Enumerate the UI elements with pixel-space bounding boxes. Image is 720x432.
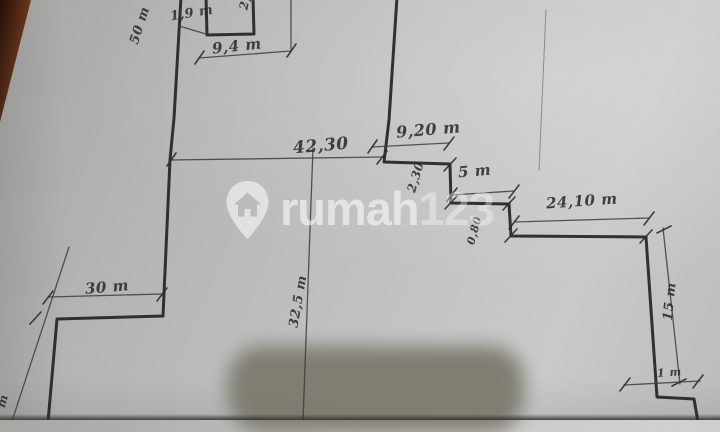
paper-crease-line xyxy=(539,10,546,170)
dim-label-30m: 30 m xyxy=(84,276,129,298)
dim-line-5 xyxy=(452,191,514,195)
dim-label-1m: 1 m xyxy=(657,365,682,380)
dimension-tick-marks xyxy=(30,44,703,391)
photo-edge-shadow xyxy=(0,414,720,420)
dim-line-24-10 xyxy=(514,218,649,222)
plot-sketch-drawing xyxy=(0,0,720,420)
dim-leader-1-9 xyxy=(179,26,206,34)
dim-line-9-20 xyxy=(372,143,449,147)
plot-boundary-left xyxy=(48,0,181,420)
dim-line-1 xyxy=(624,381,700,385)
plot-boundary-right-staircase xyxy=(384,0,698,420)
dim-extension-lower-left xyxy=(12,247,69,420)
dim-line-42-30 xyxy=(171,157,382,160)
dim-label-5m: 5 m xyxy=(457,161,491,182)
